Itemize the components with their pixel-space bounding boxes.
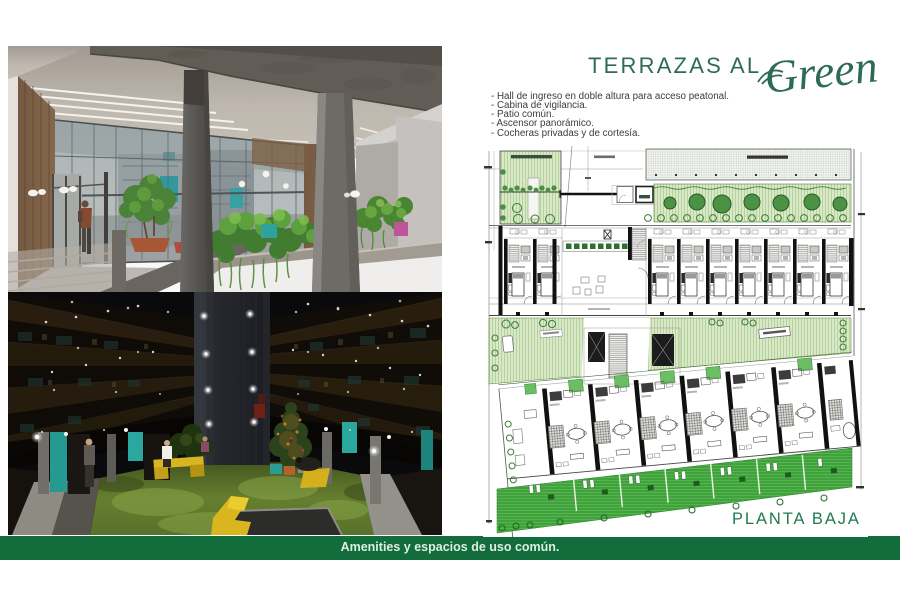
svg-text:Green: Green (762, 43, 880, 103)
